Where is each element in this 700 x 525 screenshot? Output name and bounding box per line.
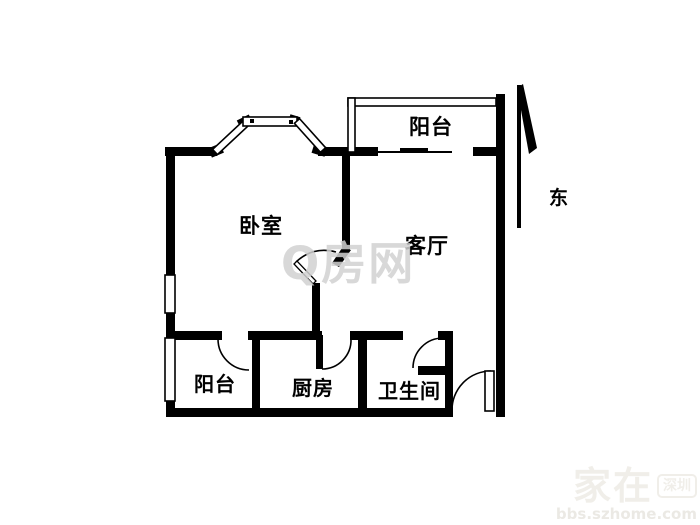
wall-divider-balcony-kitchen — [252, 331, 260, 417]
bay-window-tick-right — [289, 120, 293, 124]
wall-divider-bedroom-living-upper — [342, 150, 350, 250]
wall-divider-kitchen-bathroom — [358, 331, 367, 417]
wall-top-right — [473, 147, 496, 156]
kitchen-door-leaf — [316, 335, 323, 369]
entry-door-leaf — [485, 371, 494, 411]
bedroom-left-window — [165, 275, 175, 313]
corner-watermark-row: 家在 深圳 — [556, 467, 697, 505]
balcony-bottom-door-arc — [218, 339, 249, 370]
wall-bathroom-jog — [418, 366, 453, 375]
wall-right — [496, 94, 505, 417]
compass-arrow-icon — [517, 84, 537, 228]
balcony-left-window — [165, 338, 175, 401]
balcony-railing-left — [348, 98, 355, 152]
wall-divider-bedroom-living-lower — [312, 283, 320, 338]
wall-bottom — [166, 408, 452, 417]
balcony-sliding-window-panel — [400, 148, 428, 153]
room-label-balcony-bottom: 阳台 — [194, 374, 236, 394]
corner-watermark-badge: 深圳 — [657, 474, 697, 498]
kitchen-door-arc — [322, 339, 351, 369]
center-watermark-logo: Q房网 — [281, 241, 415, 286]
wall-living-bathroom-left — [350, 331, 403, 340]
room-label-bathroom: 卫生间 — [378, 381, 441, 401]
bay-window-left — [213, 121, 248, 154]
bay-window-right — [294, 119, 325, 153]
floorplan-page: 阳台 卧室 客厅 阳台 厨房 卫生间 东 Q房网 家在 深圳 bbs.szhom… — [0, 0, 700, 525]
room-label-kitchen: 厨房 — [292, 378, 334, 398]
compass-east-label: 东 — [549, 189, 568, 208]
room-label-bedroom: 卧室 — [239, 216, 283, 237]
room-label-balcony-top: 阳台 — [409, 117, 453, 138]
balcony-railing-top — [348, 98, 496, 106]
corner-watermark-brand: 家在 — [573, 467, 653, 505]
bathroom-door-arc — [413, 338, 443, 368]
bay-window-tick-left — [250, 119, 254, 123]
corner-watermark: 家在 深圳 bbs.szhome.com — [556, 467, 697, 523]
wall-left-upper — [166, 147, 175, 275]
corner-watermark-url: bbs.szhome.com — [556, 505, 697, 523]
